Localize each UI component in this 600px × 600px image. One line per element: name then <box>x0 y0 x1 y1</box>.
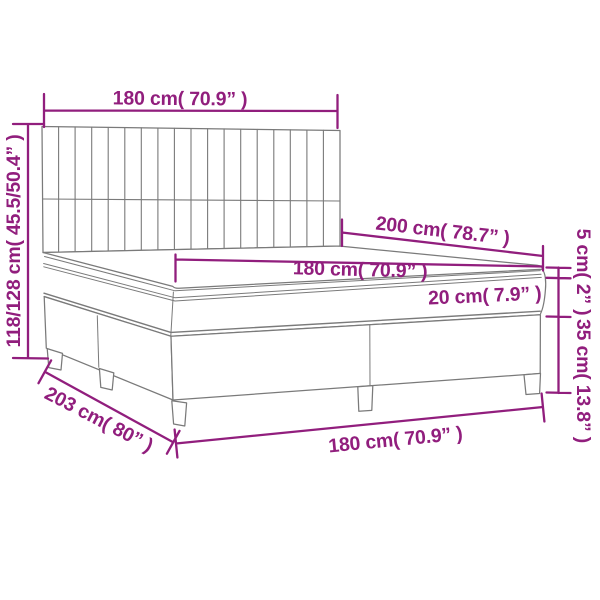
leg-mid-left <box>99 369 113 391</box>
leg-front-right <box>524 373 541 394</box>
dim-total-length-label: 203 cm( 80” ) <box>41 382 157 456</box>
dim-headboard-width-label: 180 cm( 70.9” ) <box>113 87 248 110</box>
dim-topper-thickness-label: 5 cm( 2” ) <box>572 229 594 316</box>
dim-mattress-thickness-label: 20 cm( 7.9” ) <box>428 283 542 310</box>
dim-headboard-width: 180 cm( 70.9” ) <box>44 87 338 128</box>
dim-right-heights: 5 cm( 2” ) 35 cm( 13.8” ) <box>547 229 595 443</box>
leg-front-middle <box>358 386 373 412</box>
mattress-right-edge <box>541 270 546 314</box>
dim-base-width-label: 180 cm( 70.9” ) <box>327 423 463 458</box>
diagram-canvas: 180 cm( 70.9” ) 118/128 cm( 45.5/50.4” )… <box>0 0 600 600</box>
dim-headboard-height: 118/128 cm( 45.5/50.4” ) <box>3 124 48 359</box>
dim-headboard-height-label: 118/128 cm( 45.5/50.4” ) <box>3 134 25 347</box>
dim-base-height-label: 35 cm( 13.8” ) <box>572 319 594 443</box>
bed-dimension-diagram: 180 cm( 70.9” ) 118/128 cm( 45.5/50.4” )… <box>0 0 600 600</box>
box-front-panel <box>171 315 540 400</box>
leg-front-corner <box>172 401 187 426</box>
mattress-corner-edge <box>171 292 174 336</box>
dim-right-heights-lines <box>547 268 571 394</box>
dim-mattress-width-label: 180 cm( 70.9” ) <box>293 257 428 283</box>
